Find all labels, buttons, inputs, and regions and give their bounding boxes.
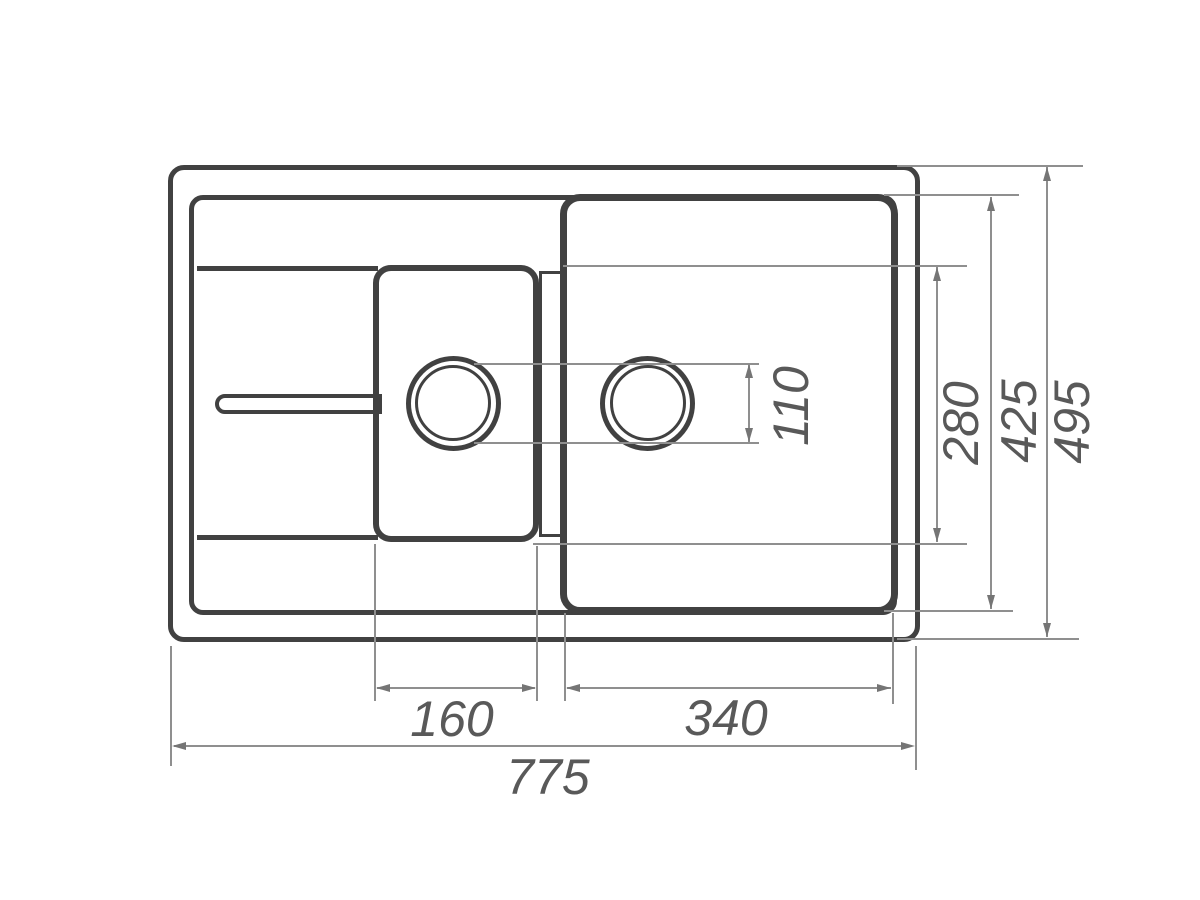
extension-line-495-bottom [897, 638, 1079, 640]
extension-line-495-top [897, 165, 1083, 167]
extension-line-425-top [884, 194, 1019, 196]
dim-main-bowl-width-label: 340 [684, 693, 767, 743]
dim-main-bowl-inner-depth-label: 280 [936, 381, 986, 464]
dim-arrow [522, 684, 536, 692]
dim-main-bowl-outer-depth-label: 425 [994, 379, 1044, 462]
dimension-line-160 [377, 687, 535, 689]
dimension-line-775 [174, 745, 902, 747]
extension-line-280-bottom [533, 543, 967, 545]
dim-arrow [745, 428, 753, 442]
dim-arrow [172, 742, 186, 750]
drainboard-groove-center [215, 394, 382, 414]
dimension-line-340 [567, 687, 891, 689]
dim-arrow [987, 197, 995, 211]
dim-arrow [745, 364, 753, 378]
sink-technical-drawing: 110 280 425 495 160 340 775 [0, 0, 1200, 900]
extension-line-340-right [892, 613, 894, 704]
dim-drain-diameter-label: 110 [766, 366, 816, 446]
extension-line-280-top [563, 265, 967, 267]
dim-arrow [376, 684, 390, 692]
extension-line-160-left [374, 544, 376, 701]
main-bowl-drain-hole-inner [610, 365, 686, 441]
drainboard-groove-top [197, 266, 378, 271]
extension-line-110-bottom [474, 442, 759, 444]
dim-overall-depth-label: 495 [1047, 380, 1097, 463]
dim-overall-width-label: 775 [506, 752, 589, 802]
dim-half-bowl-width-label: 160 [410, 694, 493, 744]
drainboard-groove-bottom [197, 535, 378, 540]
extension-line-110-top [474, 363, 759, 365]
half-bowl-drain-hole-inner [415, 365, 491, 441]
extension-line-425-bottom [884, 610, 1013, 612]
dim-arrow [901, 742, 915, 750]
dim-arrow [566, 684, 580, 692]
dim-arrow [933, 528, 941, 542]
extension-line-160-right [536, 546, 538, 701]
dim-arrow [1043, 167, 1051, 181]
dim-arrow [1043, 623, 1051, 637]
dim-arrow [877, 684, 891, 692]
dim-arrow [987, 595, 995, 609]
extension-line-775-right [915, 646, 917, 770]
dim-arrow [933, 267, 941, 281]
